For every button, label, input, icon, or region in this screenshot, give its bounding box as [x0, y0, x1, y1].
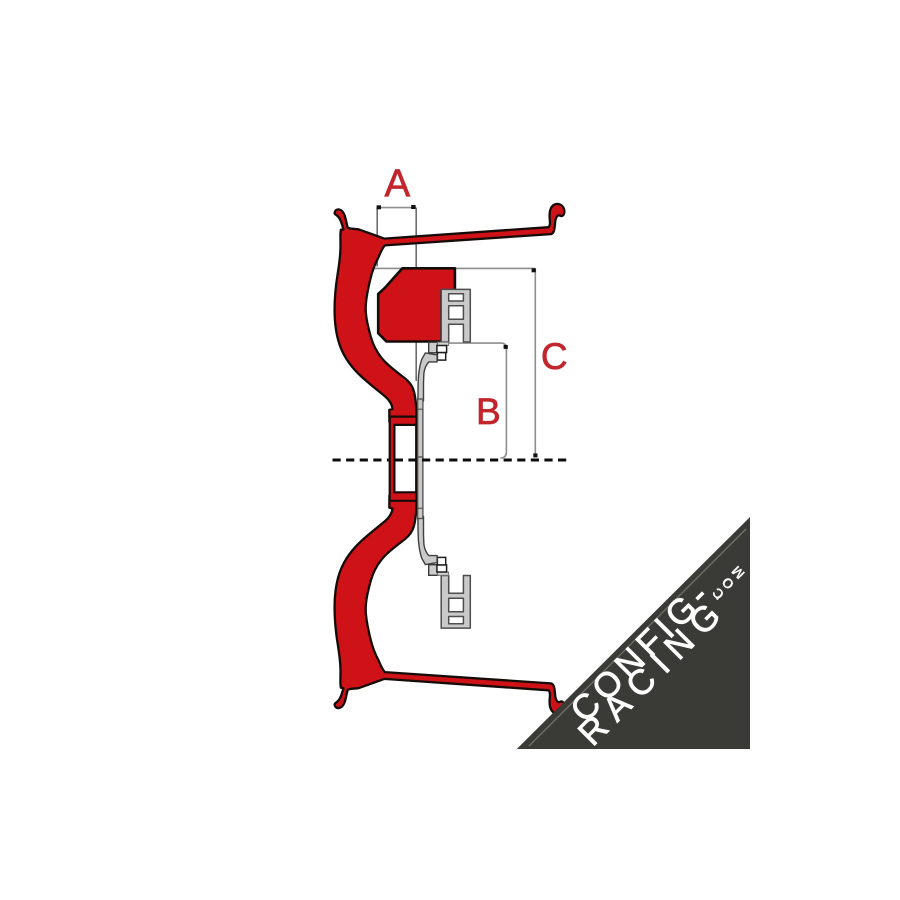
- svg-text:B: B: [476, 391, 501, 432]
- svg-text:C: C: [541, 336, 568, 377]
- svg-text:A: A: [384, 163, 410, 206]
